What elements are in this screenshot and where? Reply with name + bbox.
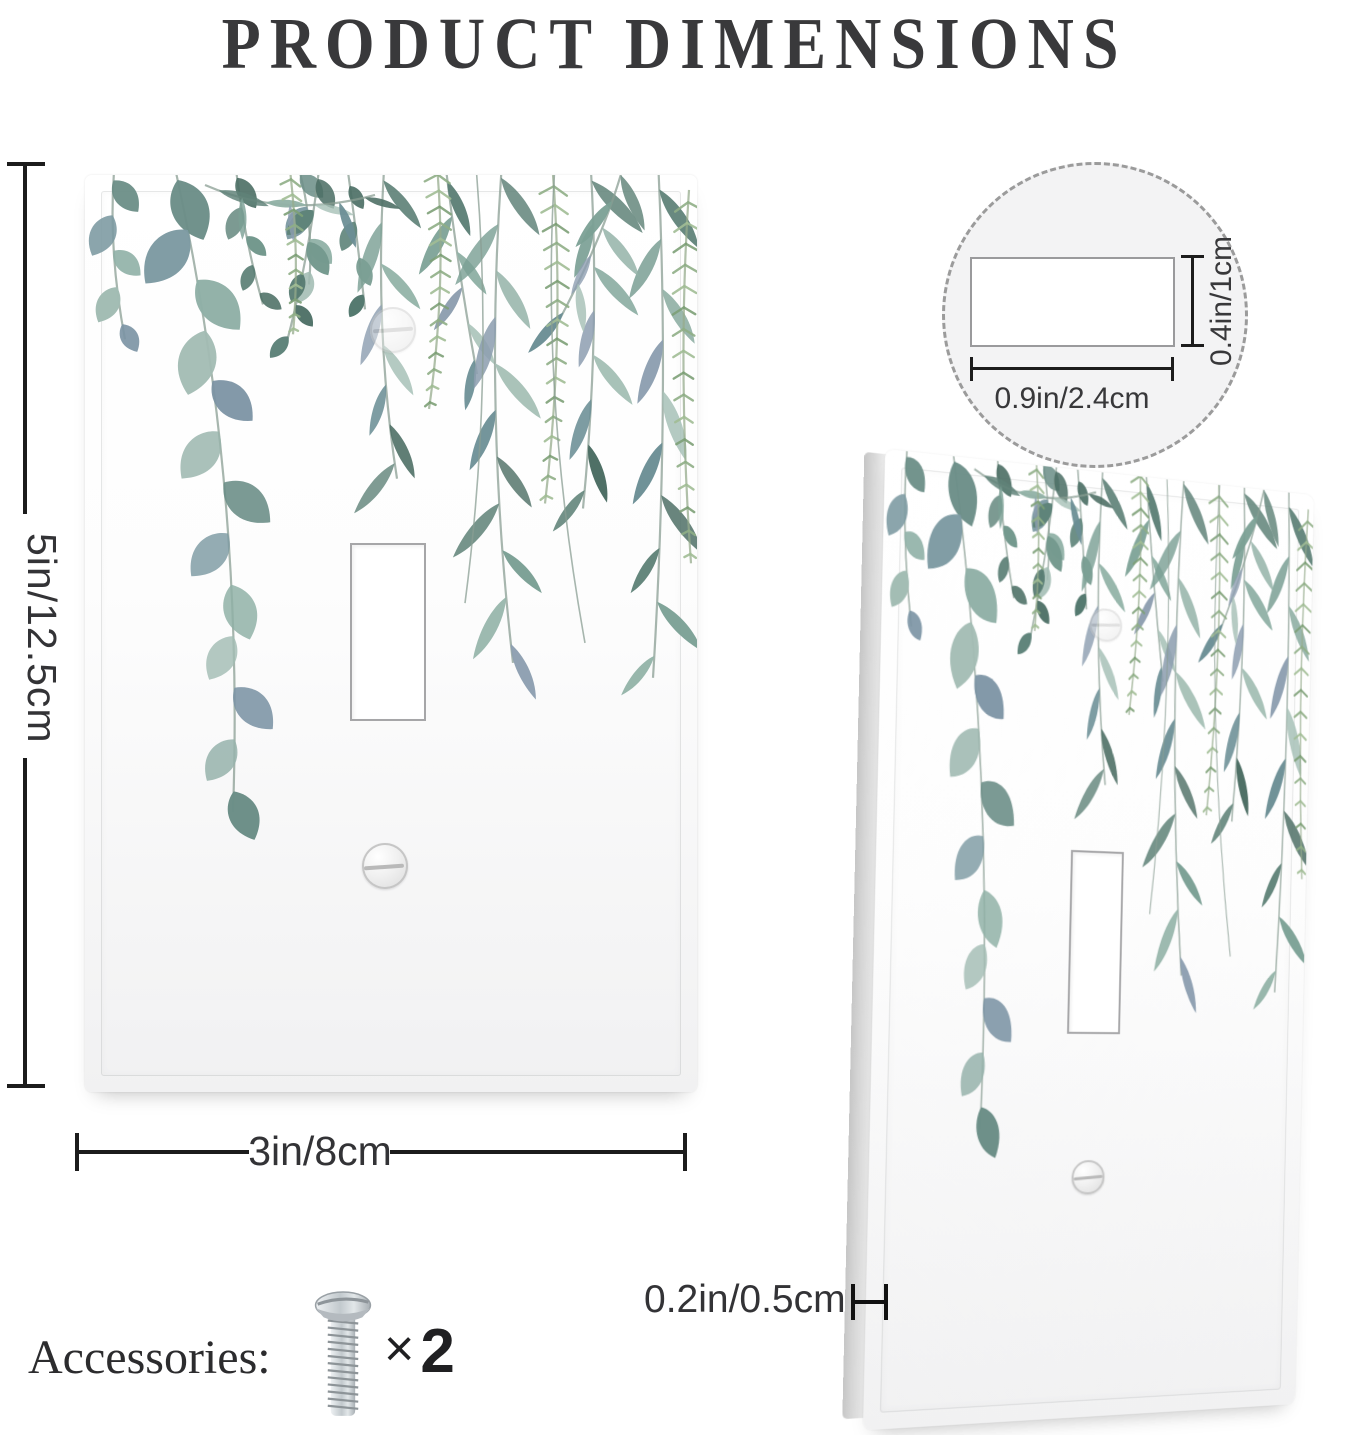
switch-plate-side-view [863, 449, 1314, 1431]
screw-bottom [362, 843, 408, 889]
hole-width-label: 0.9in/2.4cm [992, 382, 1152, 416]
accessory-quantity: ×2 [384, 1316, 455, 1387]
height-dim-line-upper [23, 165, 27, 514]
hole-height-label: 0.4in/1cm [1205, 226, 1239, 376]
hole-height-cap-bottom [1181, 344, 1204, 347]
screw-bottom [1071, 1160, 1104, 1194]
screw-icon [312, 1290, 374, 1422]
toggle-hole-detail-rect [970, 257, 1175, 347]
height-dim-label: 5in/12.5cm [18, 533, 65, 744]
height-dim-line-lower [23, 758, 27, 1086]
toggle-switch-hole [350, 543, 426, 721]
hole-width-cap-right [1171, 357, 1174, 381]
page-title: PRODUCT DIMENSIONS [0, 2, 1349, 86]
switch-plate-front-view [85, 175, 697, 1092]
thickness-label: 0.2in/0.5cm [644, 1278, 846, 1322]
hole-width-line [973, 367, 1172, 370]
width-dim-line-left [77, 1150, 249, 1154]
thickness-marker-line [853, 1300, 884, 1304]
width-dim-line-right [390, 1150, 685, 1154]
hole-height-line [1191, 258, 1194, 345]
times-symbol: × [384, 1320, 414, 1378]
width-dim-label: 3in/8cm [242, 1128, 398, 1175]
accessories-label: Accessories: [28, 1330, 271, 1385]
width-dim-cap-right [683, 1133, 687, 1171]
quantity-value: 2 [420, 1317, 454, 1386]
screw-top-faint [370, 307, 416, 353]
thickness-marker-right [884, 1284, 888, 1320]
height-dim-cap-bottom [7, 1084, 45, 1088]
switch-plate-perspective-face [863, 449, 1314, 1431]
product-dimensions-infographic: { "title": "PRODUCT DIMENSIONS", "front_… [0, 0, 1349, 1435]
toggle-switch-hole [1067, 849, 1125, 1033]
